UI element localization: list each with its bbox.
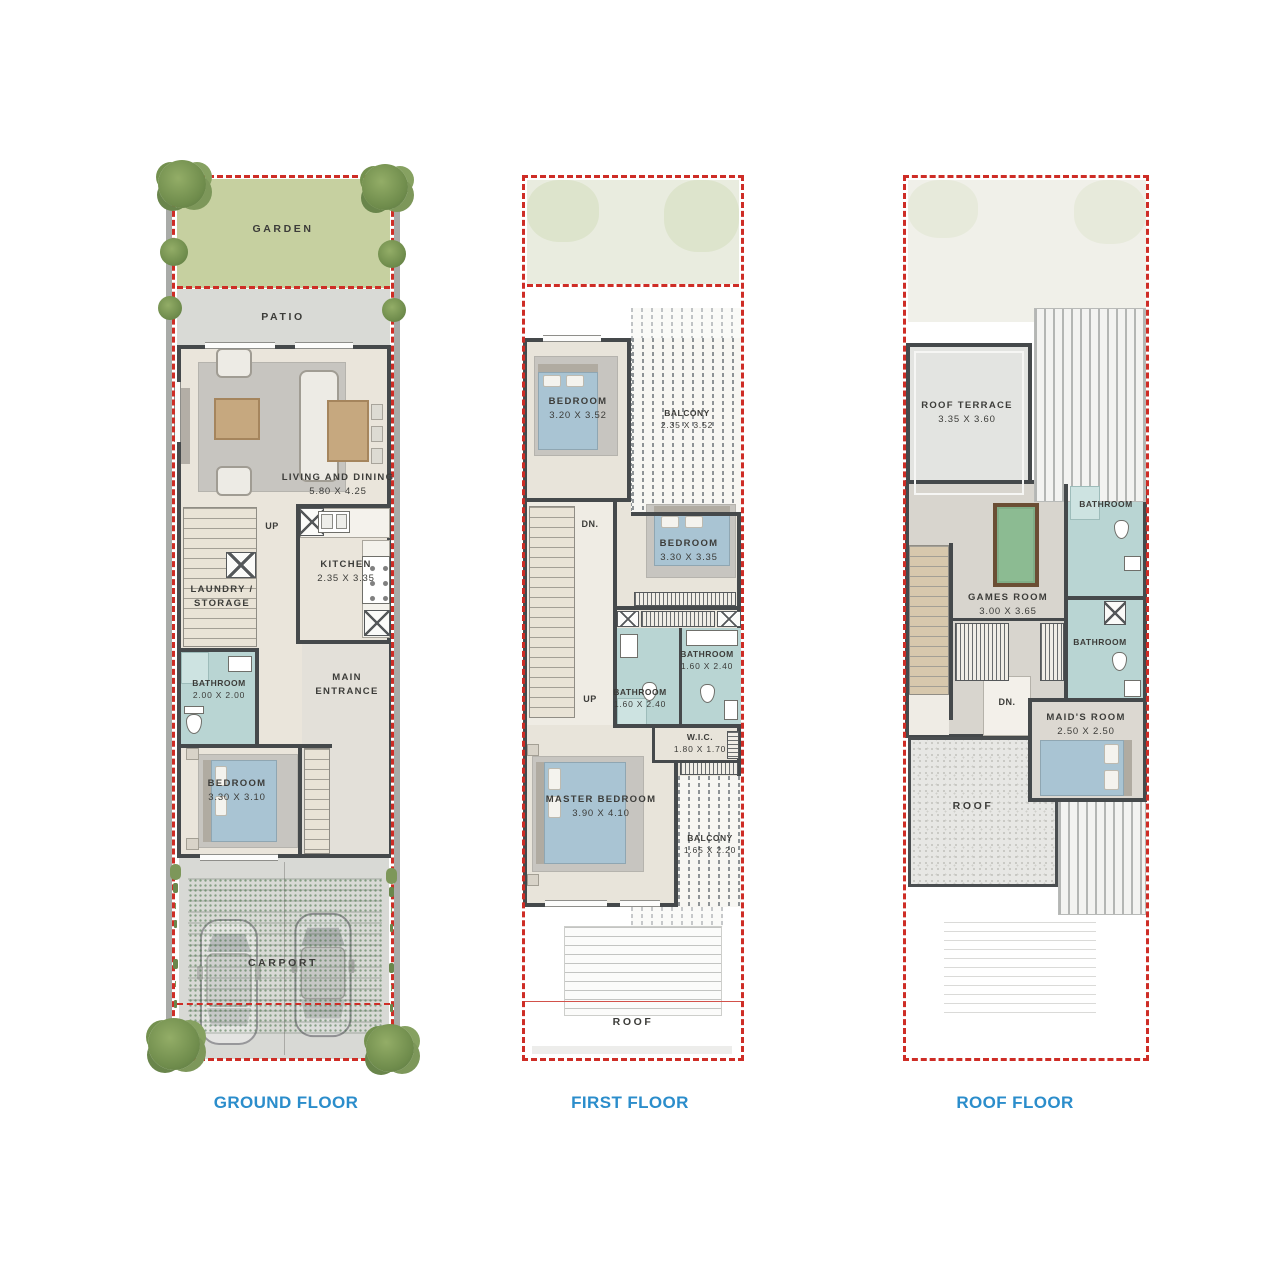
- room-label-master-bedroom: MASTER BEDROOM 3.90 X 4.10: [546, 793, 657, 821]
- plot-boundary-dashed: [522, 175, 744, 1061]
- tree-icon: [366, 1024, 414, 1072]
- room-label-bedroom1: BEDROOM 3.20 X 3.52: [549, 395, 608, 423]
- floor-title-ground: GROUND FLOOR: [214, 1093, 359, 1113]
- room-label-text: BEDROOM: [660, 537, 719, 551]
- stairs-dn-label: DN.: [582, 518, 599, 531]
- room-dims-text: 1.60 X 2.40: [613, 698, 666, 710]
- room-label-text: BATHROOM: [1079, 498, 1132, 510]
- bush-icon: [160, 238, 188, 266]
- room-label-bedroom2: BEDROOM 3.30 X 3.35: [660, 537, 719, 565]
- room-label-text: UP: [583, 693, 597, 706]
- room-label-text: BALCONY: [684, 832, 736, 844]
- room-label-bathroom1: BATHROOM 1.60 X 2.40: [613, 686, 666, 711]
- room-label-text: MAIN: [315, 671, 378, 685]
- room-label-bathroom2: BATHROOM: [1073, 636, 1126, 648]
- room-label-roof-terrace: ROOF TERRACE 3.35 X 3.60: [921, 399, 1013, 427]
- stairs-dn-label: DN.: [999, 696, 1016, 709]
- room-label-laundry-storage: LAUNDRY / STORAGE: [191, 583, 254, 611]
- room-dims-text: 3.30 X 3.10: [208, 791, 267, 805]
- room-label-bathroom: BATHROOM 2.00 X 2.00: [192, 677, 245, 702]
- room-label-text: ROOF: [613, 1015, 654, 1030]
- room-label-carport: CARPORT: [248, 956, 318, 971]
- room-label-text: ENTRANCE: [315, 685, 378, 699]
- room-label-text: BEDROOM: [208, 777, 267, 791]
- room-label-text: BATHROOM: [192, 677, 245, 689]
- room-label-text: LAUNDRY /: [191, 583, 254, 597]
- room-dims-text: 3.30 X 3.35: [660, 551, 719, 565]
- room-label-text: BALCONY: [661, 407, 713, 419]
- room-label-living-dining: LIVING AND DINING 5.80 X 4.25: [282, 471, 395, 499]
- room-label-text: DN.: [999, 696, 1016, 709]
- room-label-roof: ROOF: [953, 799, 994, 814]
- tree-icon: [158, 160, 206, 208]
- room-label-text: W.I.C.: [674, 731, 726, 743]
- room-dims-text: 3.20 X 3.52: [549, 409, 608, 423]
- room-label-text: BATHROOM: [613, 686, 666, 698]
- room-label-text: GAMES ROOM: [968, 591, 1048, 605]
- room-dims-text: 1.65 X 2.20: [684, 844, 736, 856]
- bush-icon: [378, 240, 406, 268]
- room-label-text: CARPORT: [248, 956, 318, 971]
- stairs-up-label: UP: [265, 520, 279, 533]
- room-dims-text: 3.35 X 3.60: [921, 413, 1013, 427]
- room-label-bathroom1: BATHROOM: [1079, 498, 1132, 510]
- room-label-text: GARDEN: [252, 222, 313, 237]
- room-label-main-entrance: MAIN ENTRANCE: [315, 671, 378, 699]
- room-label-patio: PATIO: [261, 310, 305, 325]
- room-label-text: BATHROOM: [1073, 636, 1126, 648]
- room-label-text: BATHROOM: [680, 648, 733, 660]
- stairs-up-label: UP: [583, 693, 597, 706]
- tree-icon: [148, 1018, 200, 1070]
- room-label-text: BEDROOM: [549, 395, 608, 409]
- room-dims-text: 1.60 X 2.40: [680, 660, 733, 672]
- hedge: [170, 864, 181, 880]
- room-label-text: STORAGE: [191, 597, 254, 611]
- room-dims-text: 2.00 X 2.00: [192, 689, 245, 701]
- room-label-text: LIVING AND DINING: [282, 471, 395, 485]
- room-label-text: MAID'S ROOM: [1046, 711, 1125, 725]
- room-dims-text: 1.80 X 1.70: [674, 743, 726, 755]
- room-label-balcony2: BALCONY 1.65 X 2.20: [684, 832, 736, 857]
- room-dims-text: 2.50 X 2.50: [1046, 725, 1125, 739]
- bush-icon: [382, 298, 406, 322]
- room-label-text: ROOF TERRACE: [921, 399, 1013, 413]
- room-label-text: ROOF: [953, 799, 994, 814]
- room-dims-text: 2.35 X 3.35: [317, 572, 374, 586]
- room-dims-text: 3.90 X 4.10: [546, 807, 657, 821]
- room-label-bedroom: BEDROOM 3.30 X 3.10: [208, 777, 267, 805]
- room-label-text: KITCHEN: [317, 558, 374, 572]
- tree-icon: [362, 164, 408, 210]
- room-label-roof: ROOF: [613, 1015, 654, 1030]
- room-label-text: MASTER BEDROOM: [546, 793, 657, 807]
- room-dims-text: 3.00 X 3.65: [968, 605, 1048, 619]
- room-label-text: DN.: [582, 518, 599, 531]
- room-label-kitchen: KITCHEN 2.35 X 3.35: [317, 558, 374, 586]
- room-label-maids-room: MAID'S ROOM 2.50 X 2.50: [1046, 711, 1125, 739]
- bush-icon: [158, 296, 182, 320]
- room-dims-text: 2.35 X 3.52: [661, 419, 713, 431]
- room-label-text: UP: [265, 520, 279, 533]
- room-label-text: PATIO: [261, 310, 305, 325]
- plot-boundary-dashed: [172, 175, 394, 1061]
- room-label-bathroom2: BATHROOM 1.60 X 2.40: [680, 648, 733, 673]
- hedge: [386, 868, 397, 884]
- room-label-balcony1: BALCONY 2.35 X 3.52: [661, 407, 713, 432]
- room-label-wic: W.I.C. 1.80 X 1.70: [674, 731, 726, 756]
- floor-title-first: FIRST FLOOR: [571, 1093, 689, 1113]
- room-label-garden: GARDEN: [252, 222, 313, 237]
- floor-title-roof: ROOF FLOOR: [956, 1093, 1073, 1113]
- floor-plan-sheet: GARDEN PATIO LIVING AND DINING 5.80 X 4.…: [0, 0, 1280, 1280]
- room-label-games-room: GAMES ROOM 3.00 X 3.65: [968, 591, 1048, 619]
- room-dims-text: 5.80 X 4.25: [282, 485, 395, 499]
